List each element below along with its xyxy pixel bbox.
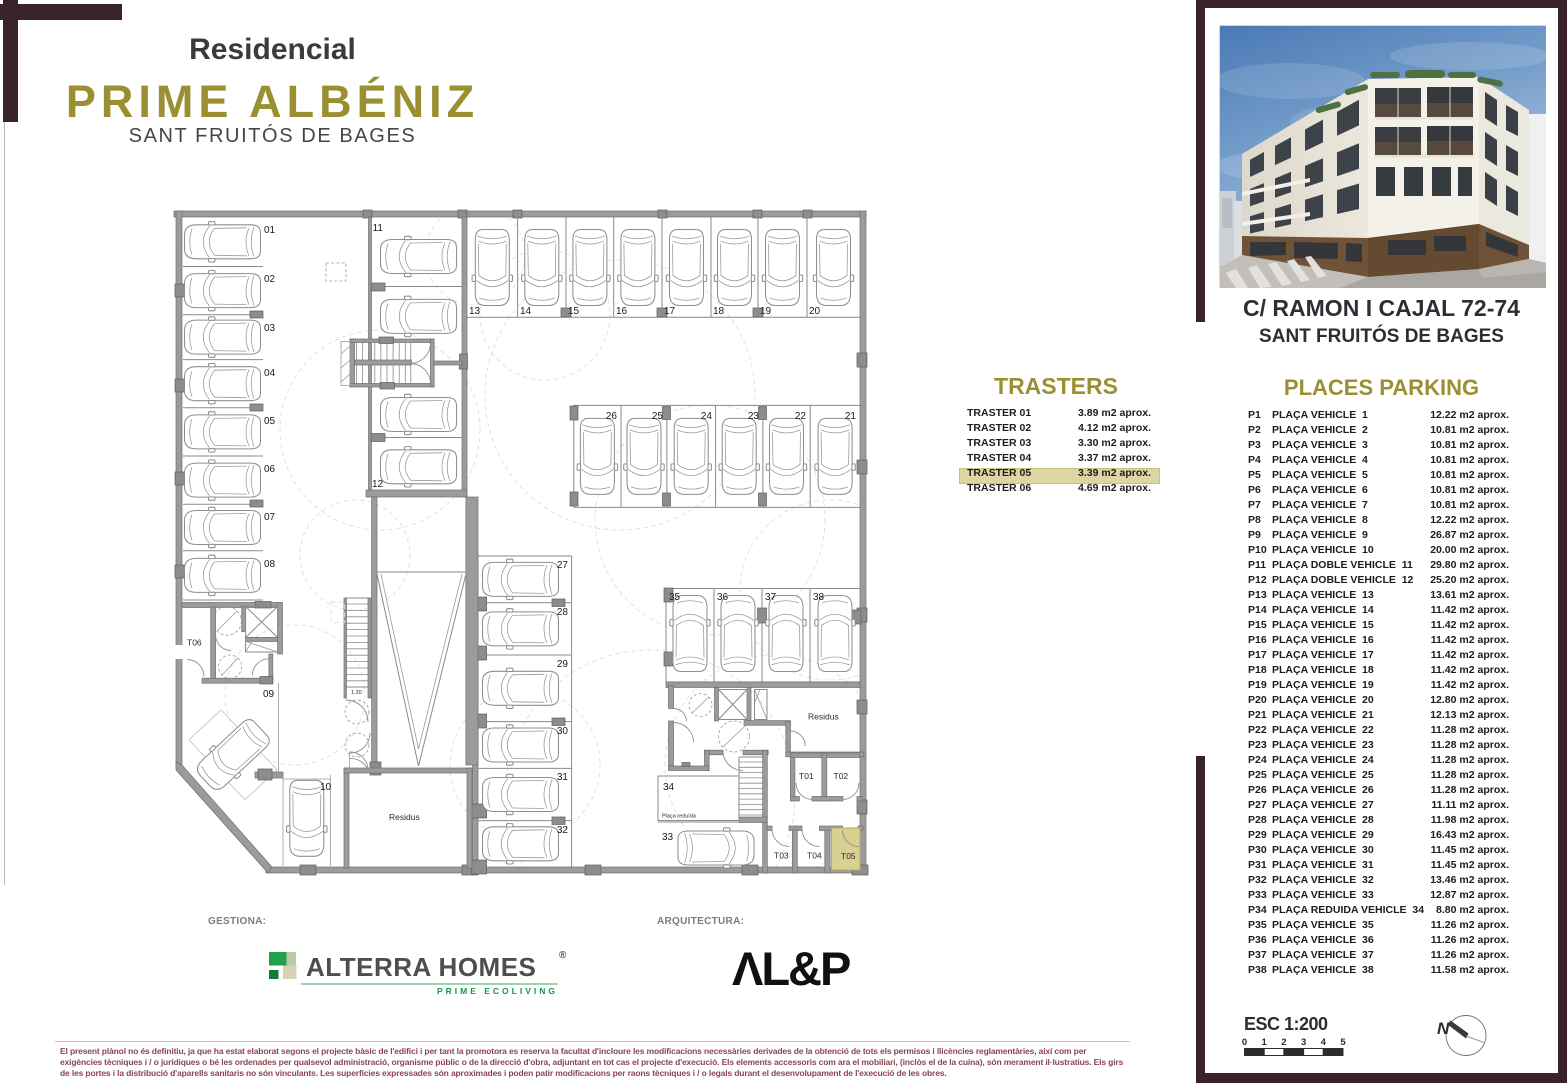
- svg-text:21: 21: [845, 411, 857, 422]
- svg-text:Residus: Residus: [389, 812, 420, 822]
- svg-text:T02: T02: [834, 771, 849, 781]
- svg-text:Plaça reduïda: Plaça reduïda: [662, 814, 697, 820]
- svg-text:33: 33: [662, 832, 674, 843]
- svg-text:2: 2: [1281, 1037, 1286, 1048]
- svg-text:3: 3: [1301, 1037, 1306, 1048]
- svg-text:34: 34: [663, 782, 675, 793]
- svg-text:14: 14: [520, 306, 532, 317]
- svg-text:38: 38: [813, 592, 825, 603]
- svg-text:Residus: Residus: [808, 712, 839, 722]
- svg-text:16: 16: [616, 306, 628, 317]
- svg-text:12: 12: [372, 479, 384, 490]
- svg-text:29: 29: [557, 659, 569, 670]
- svg-text:4: 4: [1321, 1037, 1327, 1048]
- svg-text:5: 5: [1340, 1037, 1346, 1048]
- svg-text:09: 09: [263, 689, 275, 700]
- svg-text:05: 05: [264, 416, 276, 427]
- svg-text:27: 27: [557, 560, 569, 571]
- svg-text:36: 36: [717, 592, 729, 603]
- svg-text:02: 02: [264, 274, 276, 285]
- svg-text:30: 30: [557, 726, 569, 737]
- svg-text:T01: T01: [799, 771, 814, 781]
- svg-text:13: 13: [469, 306, 481, 317]
- svg-text:T05: T05: [841, 851, 856, 861]
- svg-text:31: 31: [557, 772, 569, 783]
- svg-text:0: 0: [1242, 1037, 1247, 1048]
- svg-text:T06: T06: [187, 638, 202, 648]
- svg-text:23: 23: [748, 411, 760, 422]
- svg-text:18: 18: [713, 306, 725, 317]
- svg-text:ESC 1:200: ESC 1:200: [1244, 1014, 1328, 1034]
- svg-text:03: 03: [264, 323, 276, 334]
- svg-text:28: 28: [557, 607, 569, 618]
- svg-text:04: 04: [264, 368, 276, 379]
- svg-text:1: 1: [1262, 1037, 1268, 1048]
- svg-text:22: 22: [795, 411, 807, 422]
- svg-text:T03: T03: [774, 851, 789, 861]
- svg-text:19: 19: [760, 306, 772, 317]
- svg-text:20: 20: [809, 306, 821, 317]
- svg-text:32: 32: [557, 825, 569, 836]
- svg-text:T04: T04: [807, 851, 822, 861]
- svg-text:25: 25: [652, 411, 664, 422]
- svg-text:35: 35: [669, 592, 681, 603]
- svg-text:37: 37: [765, 592, 777, 603]
- svg-text:N: N: [1437, 1019, 1450, 1038]
- svg-text:07: 07: [264, 512, 276, 523]
- svg-text:01: 01: [264, 225, 276, 236]
- svg-text:11: 11: [373, 223, 384, 234]
- svg-text:26: 26: [606, 411, 618, 422]
- svg-text:08: 08: [264, 559, 276, 570]
- svg-text:1.20: 1.20: [351, 690, 362, 696]
- svg-text:06: 06: [264, 464, 276, 475]
- svg-text:17: 17: [664, 306, 676, 317]
- svg-text:10: 10: [320, 782, 332, 793]
- svg-text:15: 15: [568, 306, 580, 317]
- svg-text:24: 24: [701, 411, 713, 422]
